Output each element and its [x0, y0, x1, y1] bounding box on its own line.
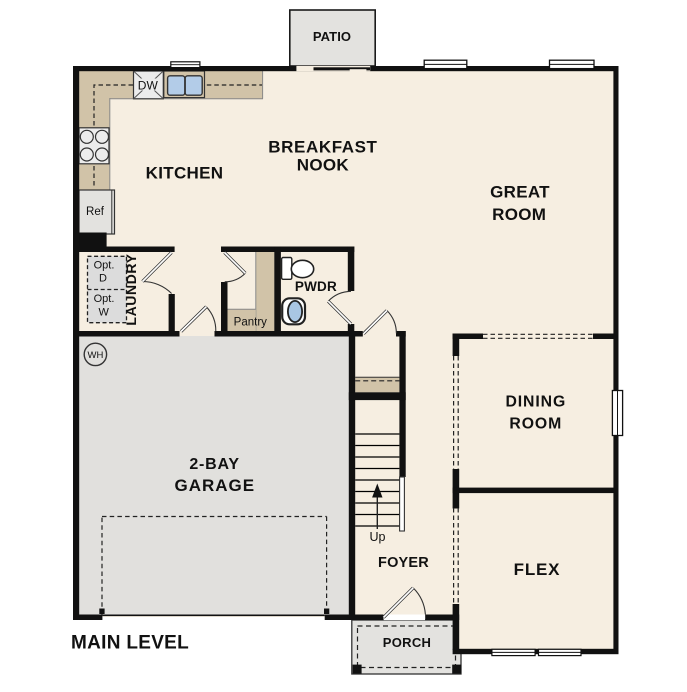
svg-text:D: D	[99, 272, 107, 284]
svg-text:LAUNDRY: LAUNDRY	[123, 253, 139, 325]
svg-text:WH: WH	[87, 350, 103, 361]
svg-text:BREAKFAST: BREAKFAST	[268, 137, 377, 156]
svg-text:PORCH: PORCH	[383, 635, 431, 650]
svg-text:ROOM: ROOM	[509, 416, 562, 433]
svg-text:W: W	[99, 306, 110, 318]
svg-text:NOOK: NOOK	[297, 156, 350, 175]
svg-text:ROOM: ROOM	[492, 205, 546, 224]
svg-text:Ref: Ref	[86, 206, 105, 218]
svg-text:KITCHEN: KITCHEN	[146, 164, 224, 183]
svg-text:2-BAY: 2-BAY	[189, 456, 240, 473]
svg-text:Up: Up	[370, 530, 386, 544]
svg-text:Pantry: Pantry	[234, 317, 267, 329]
svg-text:FOYER: FOYER	[378, 555, 429, 571]
svg-text:Opt.: Opt.	[94, 293, 115, 305]
svg-text:DINING: DINING	[505, 393, 566, 410]
svg-text:DW: DW	[138, 79, 159, 93]
svg-text:FLEX: FLEX	[514, 560, 561, 579]
svg-text:PATIO: PATIO	[313, 29, 351, 44]
svg-text:GARAGE: GARAGE	[174, 476, 255, 495]
svg-text:MAIN LEVEL: MAIN LEVEL	[71, 633, 189, 654]
svg-text:PWDR: PWDR	[295, 279, 337, 294]
svg-text:Opt.: Opt.	[94, 259, 115, 271]
svg-text:GREAT: GREAT	[490, 182, 550, 201]
